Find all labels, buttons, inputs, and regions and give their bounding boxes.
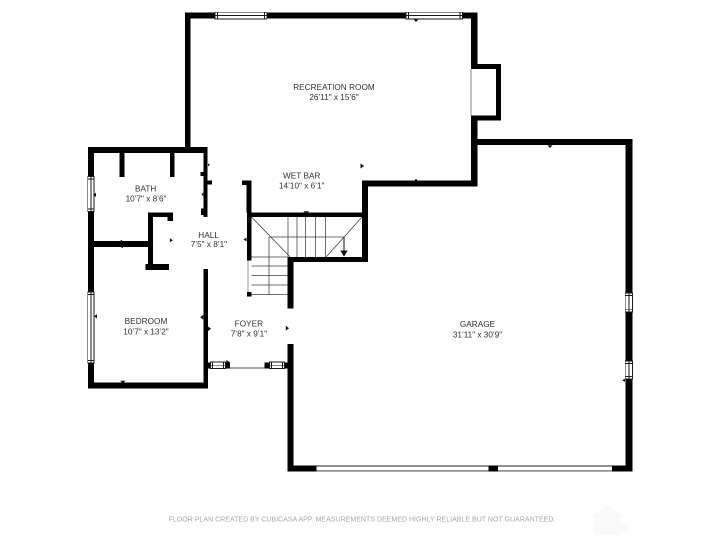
svg-text:FOYER: FOYER xyxy=(235,319,263,328)
svg-text:7’5" x 8’1": 7’5" x 8’1" xyxy=(191,240,227,249)
svg-text:BEDROOM: BEDROOM xyxy=(125,317,168,326)
svg-text:RECREATION ROOM: RECREATION ROOM xyxy=(293,83,375,92)
svg-text:BATH: BATH xyxy=(135,185,156,194)
svg-text:14’10" x 6’1": 14’10" x 6’1" xyxy=(279,181,325,190)
svg-text:26’11" x 15’6": 26’11" x 15’6" xyxy=(309,93,358,102)
svg-text:WET BAR: WET BAR xyxy=(283,172,321,181)
svg-text:GARAGE: GARAGE xyxy=(460,320,496,329)
svg-text:HALL: HALL xyxy=(198,231,219,240)
svg-text:10’7" x 8’6": 10’7" x 8’6" xyxy=(126,195,167,204)
svg-text:7’8" x 9’1": 7’8" x 9’1" xyxy=(231,330,267,339)
svg-text:31’11" x 30’9": 31’11" x 30’9" xyxy=(453,331,502,340)
svg-text:10’7" x 13’2": 10’7" x 13’2" xyxy=(123,328,169,337)
svg-text:FLOOR PLAN CREATED BY CUBICASA: FLOOR PLAN CREATED BY CUBICASA APP. MEAS… xyxy=(169,517,556,524)
